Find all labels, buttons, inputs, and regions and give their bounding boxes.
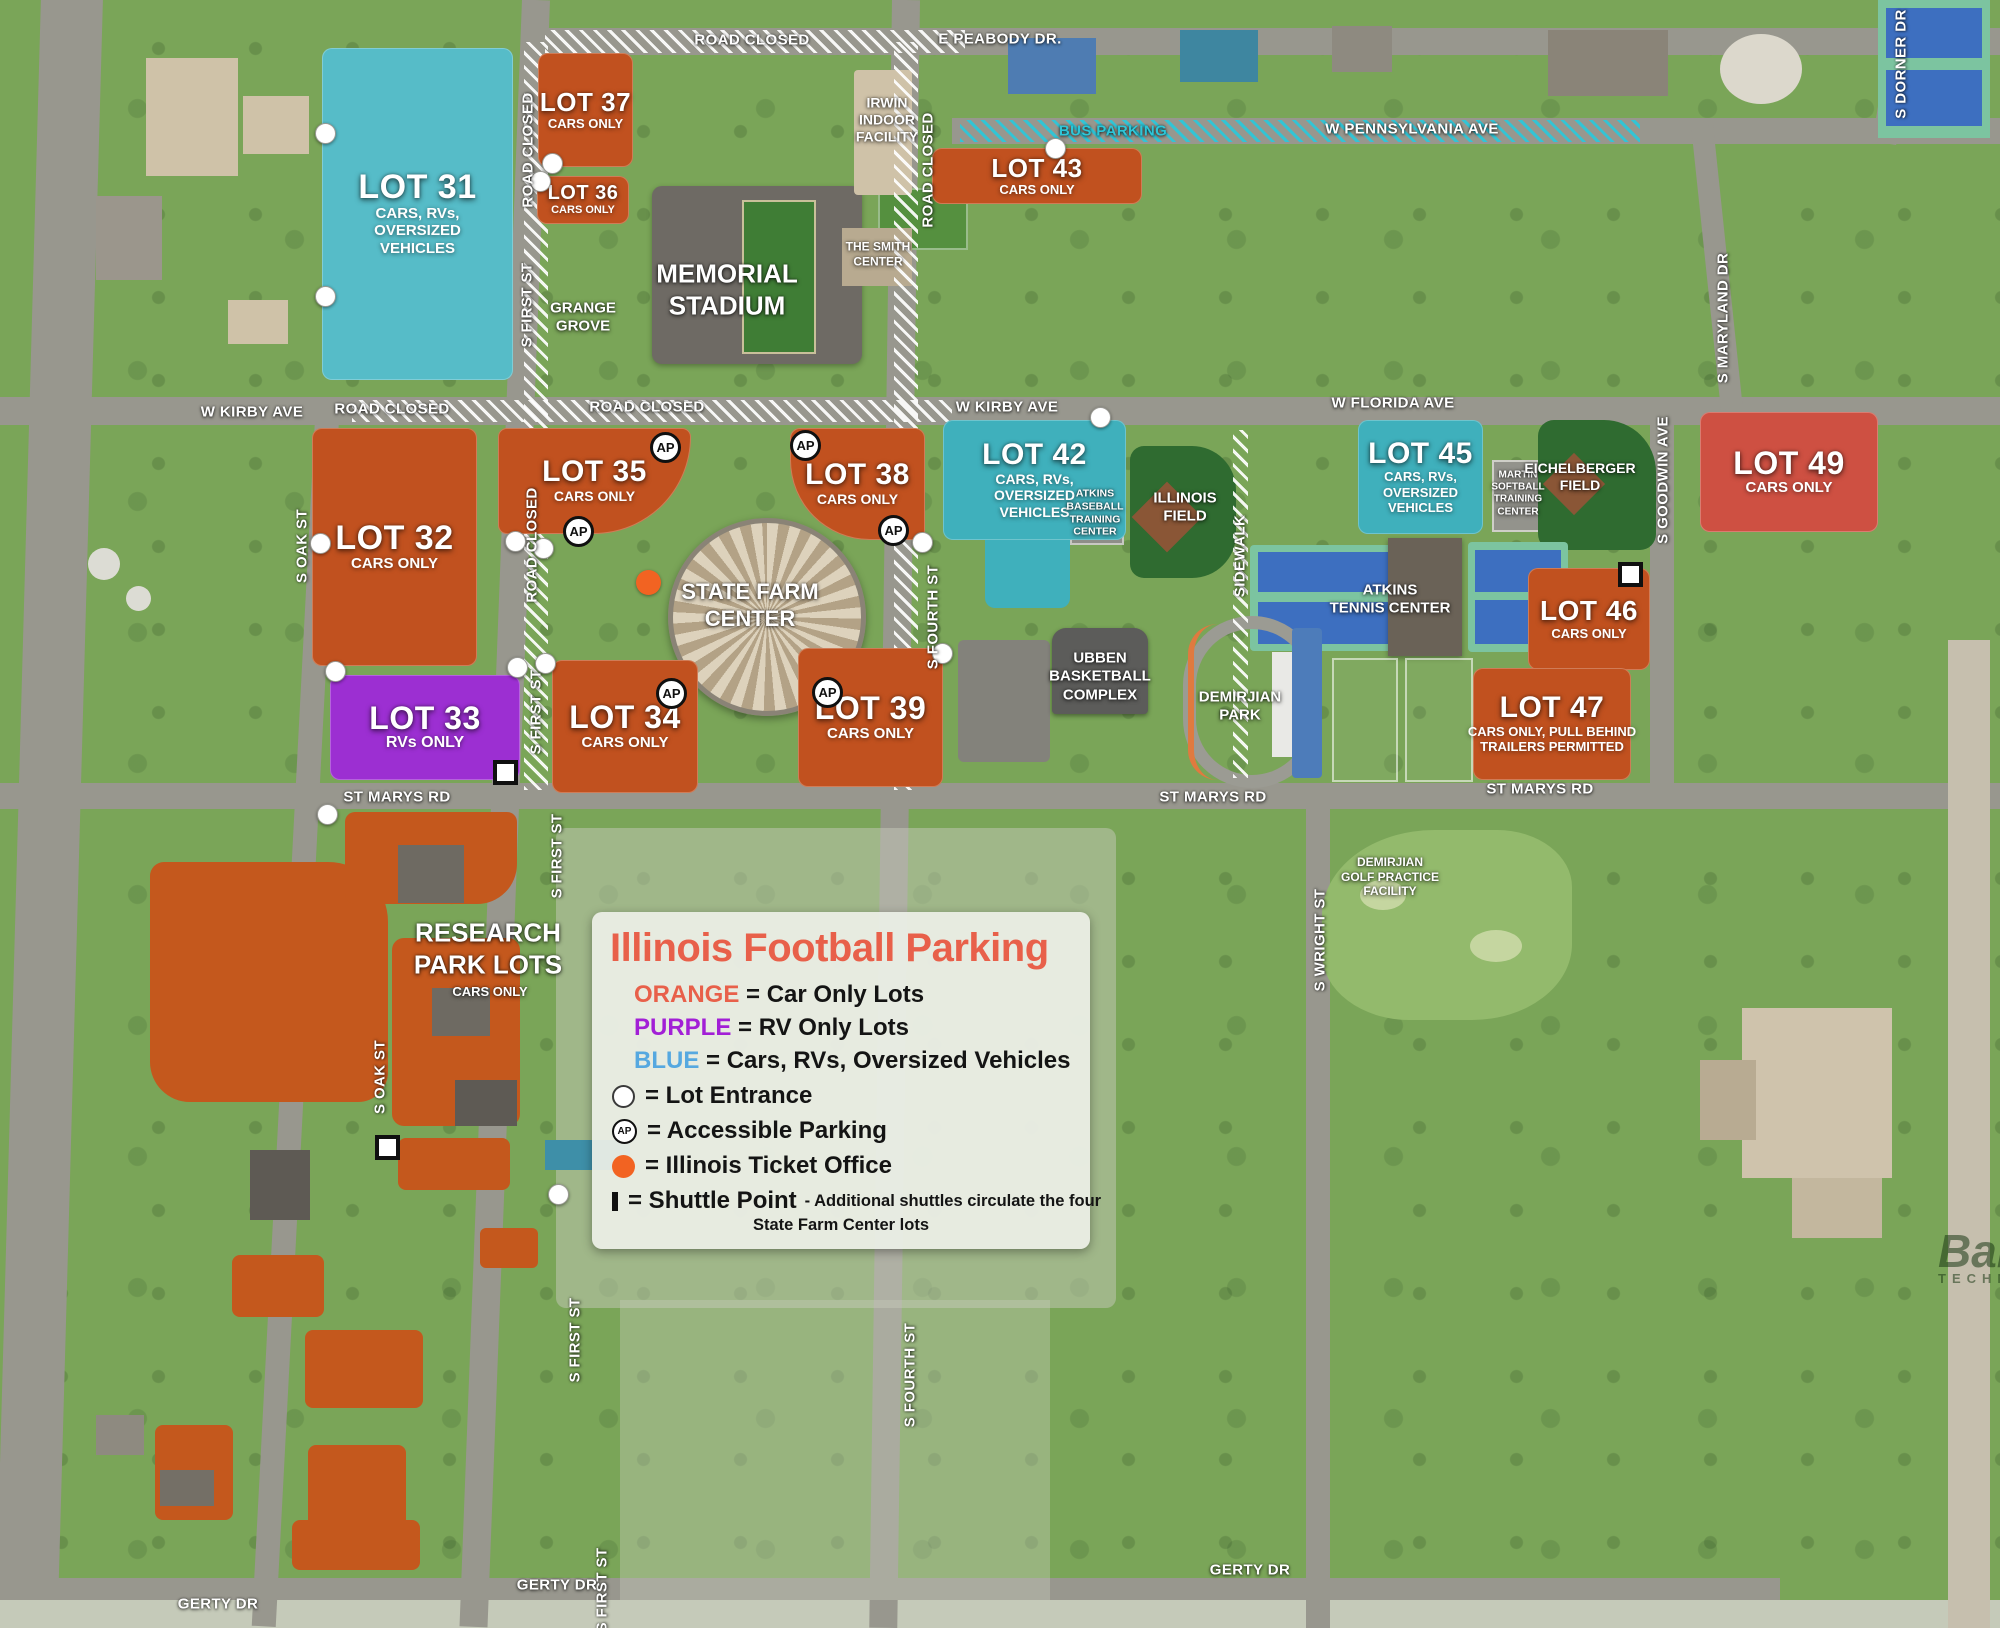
lot-36-sub-0: CARS ONLY [551, 204, 615, 217]
research-lot-5 [232, 1255, 324, 1317]
legend-entry-purple: PURPLE = RV Only Lots [634, 1014, 1074, 1042]
legend-swatch-word: ORANGE [634, 981, 739, 1008]
shuttle-note: - Additional shuttles circulate the four [805, 1192, 1101, 1211]
legend-entry-lot-entrance: = Lot Entrance [612, 1082, 1074, 1110]
building-northwest-4 [228, 300, 288, 344]
place-label-research: RESEARCHPARK LOTS [414, 917, 562, 980]
lot-entrance-marker [315, 123, 336, 144]
lot-37: LOT 37CARS ONLY [538, 53, 633, 167]
lot-entrance-icon [612, 1085, 635, 1108]
lot-35-sub-0: CARS ONLY [554, 488, 635, 505]
accessible-parking-icon: AP [612, 1119, 637, 1144]
street-label-s-wright-st: S WRIGHT ST [1312, 889, 1329, 992]
street-label-w-kirby-ave: W KIRBY AVE [201, 404, 303, 421]
street-label-s-fourth-st: S FOURTH ST [902, 1323, 919, 1427]
accessible-parking-marker: AP [878, 515, 909, 546]
lot-45-sub-1: OVERSIZED [1383, 485, 1458, 500]
street-label-s-dorner-dr: S DORNER DR [1893, 9, 1910, 118]
place-label-demirjian: DEMIRJIANGOLF PRACTICEFACILITY [1341, 855, 1439, 899]
accessible-parking-marker: AP [563, 516, 594, 547]
lot-38-sub-0: CARS ONLY [817, 491, 898, 508]
street-label-road-closed: ROAD CLOSED [524, 487, 541, 602]
accessible-parking-marker: AP [812, 677, 843, 708]
place-label-atkins: ATKINSBASEBALLTRAININGCENTER [1066, 487, 1123, 538]
place-label-illinois: ILLINOISFIELD [1153, 490, 1216, 527]
lot-33-sub-0: RVs ONLY [386, 734, 464, 753]
lot-entrance-marker [310, 533, 331, 554]
lot-39-sub-0: CARS ONLY [827, 725, 914, 743]
lot-31-sub-2: VEHICLES [380, 240, 455, 258]
lot-47-name: LOT 47 [1500, 693, 1605, 724]
research-building-3 [455, 1080, 517, 1126]
hospital-building-south [1792, 1178, 1882, 1238]
street-label-gerty-dr: GERTY DR [178, 1596, 258, 1613]
legend-swatch-word: BLUE [634, 1047, 699, 1074]
street-label-s-first-st: S FIRST ST [549, 814, 566, 899]
legend-color-entries: ORANGE = Car Only LotsPURPLE = RV Only L… [608, 981, 1074, 1075]
lot-32: LOT 32CARS ONLY [312, 428, 477, 666]
paved-area-south [620, 1300, 1050, 1600]
lot-33: LOT 33RVs ONLY [330, 675, 520, 780]
place-label-eichelberger: EICHELBERGERFIELD [1524, 460, 1635, 494]
street-label-road-closed: ROAD CLOSED [920, 112, 937, 227]
place-label-cars-only: CARS ONLY [452, 984, 527, 1000]
building-northeast-hall [1548, 30, 1668, 96]
watermark-sub: TECHN [1938, 1272, 2000, 1285]
paved-strip-bottom [0, 1600, 2000, 1628]
ticket-office-icon [612, 1155, 635, 1178]
place-label-irwin: IRWININDOORFACILITY [856, 94, 918, 145]
lot-33-name: LOT 33 [369, 702, 480, 735]
research-lot-10 [480, 1228, 538, 1268]
shuttle-point-icon [612, 1192, 618, 1211]
street-label-road-closed: ROAD CLOSED [589, 399, 704, 416]
lot-entrance-marker [325, 661, 346, 682]
lot-46-sub-0: CARS ONLY [1551, 626, 1626, 641]
lot-47: LOT 47CARS ONLY, PULL BEHINDTRAILERS PER… [1473, 668, 1631, 780]
shuttle-note-line2: State Farm Center lots [608, 1216, 1074, 1235]
legend-entry-label: = Accessible Parking [647, 1117, 887, 1145]
place-label-demirjian: DEMIRJIANPARK [1199, 689, 1282, 726]
watermark-logo: Bal [1938, 1228, 2000, 1274]
lot-entrance-marker [912, 532, 933, 553]
lot-31: LOT 31CARS, RVs,OVERSIZEDVEHICLES [322, 48, 513, 380]
lot-49-sub-0: CARS ONLY [1746, 479, 1833, 497]
lot-45-sub-2: VEHICLES [1388, 500, 1453, 515]
legend-title: Illinois Football Parking [610, 926, 1074, 971]
shuttle-point-marker [375, 1135, 400, 1160]
street-label-s-fourth-st: S FOURTH ST [925, 565, 942, 669]
soccer-pitch-1 [1332, 658, 1398, 782]
street-label-st-marys-rd: ST MARYS RD [1159, 789, 1266, 806]
street-label-w-florida-ave: W FLORIDA AVE [1332, 395, 1455, 412]
legend-entry-orange: ORANGE = Car Only Lots [634, 981, 1074, 1009]
campus-parking-map: LOT 31CARS, RVs,OVERSIZEDVEHICLESLOT 37C… [0, 0, 2000, 1628]
place-label-grange: GRANGEGROVE [550, 300, 616, 337]
street-label-s-first-st: S FIRST ST [528, 670, 545, 755]
lot-entrance-marker [315, 286, 336, 307]
building-north-gray [1332, 26, 1392, 72]
street-label-w-pennsylvania-ave: W PENNSYLVANIA AVE [1325, 121, 1499, 138]
legend-entry-label: = Illinois Ticket Office [645, 1152, 892, 1180]
building-southwest-2 [160, 1470, 214, 1506]
lot-45-sub-0: CARS, RVs, [1384, 469, 1457, 484]
building-southwest-3 [250, 1150, 310, 1220]
road-west-edge [0, 0, 103, 1628]
place-label-atkins: ATKINSTENNIS CENTER [1330, 582, 1451, 619]
accessible-parking-marker: AP [790, 430, 821, 461]
street-label-road-closed: ROAD CLOSED [520, 92, 537, 207]
lot-34-sub-0: CARS ONLY [582, 734, 669, 752]
street-label-sidewalk: SIDEWALK [1232, 515, 1249, 597]
building-northwest-1 [146, 58, 238, 176]
lot-43: LOT 43CARS ONLY [932, 148, 1142, 204]
lot-45-name: LOT 45 [1368, 439, 1473, 470]
lot-entrance-marker [507, 657, 528, 678]
lot-39: LOT 39CARS ONLY [798, 648, 943, 787]
sidewalk-hatch [1233, 430, 1248, 778]
lot-43-name: LOT 43 [991, 155, 1082, 182]
accessible-parking-marker: AP [650, 432, 681, 463]
legend-entry-ticket-office: = Illinois Ticket Office [612, 1152, 1074, 1180]
lot-37-sub-0: CARS ONLY [548, 116, 623, 131]
lot-35-name: LOT 35 [542, 457, 647, 488]
lot-47-sub-0: CARS ONLY, PULL BEHIND [1468, 724, 1636, 739]
lot-49: LOT 49CARS ONLY [1700, 412, 1878, 532]
building-southwest-1 [96, 1415, 144, 1455]
road-east-edge [1948, 640, 1990, 1628]
lot-43-sub-0: CARS ONLY [999, 182, 1074, 197]
lot-42-extension [985, 538, 1070, 608]
storage-tank-2 [126, 586, 151, 611]
legend-panel: Illinois Football Parking ORANGE = Car O… [592, 912, 1090, 1249]
street-label-bus-parking: BUS PARKING [1059, 123, 1167, 140]
place-label-state-farm: STATE FARMCENTER [681, 579, 818, 633]
lot-entrance-marker [542, 153, 563, 174]
lot-42-sub-1: OVERSIZED [994, 487, 1075, 504]
accessible-parking-marker: AP [656, 678, 687, 709]
legend-entry-blue: BLUE = Cars, RVs, Oversized Vehicles [634, 1047, 1074, 1075]
building-north-teal [1180, 30, 1258, 82]
street-label-gerty-dr: GERTY DR [517, 1577, 597, 1594]
street-label-w-kirby-ave: W KIRBY AVE [956, 399, 1058, 416]
street-label-s-maryland-dr: S MARYLAND DR [1715, 253, 1732, 383]
shuttle-point-marker [1618, 562, 1643, 587]
hospital-building-wing [1700, 1060, 1756, 1140]
shuttle-point-marker [493, 760, 518, 785]
street-label-st-marys-rd: ST MARYS RD [1486, 781, 1593, 798]
legend-entry-shuttle-point: = Shuttle Point- Additional shuttles cir… [612, 1187, 1074, 1215]
lot-entrance-marker [317, 804, 338, 825]
hospital-building-main [1742, 1008, 1892, 1178]
street-label-s-first-st: S FIRST ST [567, 1298, 584, 1383]
lot-42-name: LOT 42 [982, 440, 1087, 471]
lot-entrance-marker [1090, 407, 1111, 428]
research-lot-9 [292, 1520, 420, 1570]
ticket-office-marker [636, 570, 661, 595]
lot-entrance-marker [1045, 138, 1066, 159]
demirjian-bleachers [1292, 628, 1322, 778]
lot-45: LOT 45CARS, RVs,OVERSIZEDVEHICLES [1358, 420, 1483, 534]
lot-47-sub-1: TRAILERS PERMITTED [1480, 739, 1624, 754]
place-label-memorial: MEMORIALSTADIUM [656, 258, 798, 321]
legend-entry-label: = Shuttle Point [628, 1187, 797, 1215]
lot-37-name: LOT 37 [540, 89, 631, 116]
street-label-s-first-st: S FIRST ST [519, 263, 536, 348]
lot-entrance-marker [548, 1184, 569, 1205]
soccer-pitch-2 [1405, 658, 1473, 782]
lot-38-name: LOT 38 [805, 460, 910, 491]
place-label-the-smith: THE SMITHCENTER [846, 239, 911, 268]
building-northeast-dome [1720, 34, 1802, 104]
legend-swatch-word: PURPLE [634, 1014, 731, 1041]
street-label-s-goodwin-ave: S GOODWIN AVE [1655, 416, 1672, 544]
research-lot-6 [305, 1330, 423, 1408]
place-label-ubben: UBBENBASKETBALLCOMPLEX [1049, 650, 1151, 705]
lot-42-sub-2: VEHICLES [999, 504, 1069, 521]
lot-32-sub-0: CARS ONLY [351, 555, 438, 573]
legend-entry-label: = Lot Entrance [645, 1082, 812, 1110]
lot-46-name: LOT 46 [1540, 597, 1638, 626]
research-lot-8 [308, 1445, 406, 1530]
storage-tank-1 [88, 548, 120, 580]
street-label-s-oak-st: S OAK ST [294, 509, 311, 583]
street-label-road-closed: ROAD CLOSED [334, 401, 449, 418]
street-label-s-oak-st: S OAK ST [372, 1040, 389, 1114]
golf-green-2 [1470, 930, 1522, 962]
legend-symbol-entries: = Lot EntranceAP= Accessible Parking= Il… [608, 1082, 1074, 1235]
research-building-1 [398, 845, 464, 903]
lot-31-sub-1: OVERSIZED [374, 222, 461, 240]
street-label-gerty-dr: GERTY DR [1210, 1562, 1290, 1579]
research-lot-4 [398, 1138, 510, 1190]
lot-32-name: LOT 32 [335, 521, 453, 556]
lot-31-sub-0: CARS, RVs, [376, 205, 460, 223]
legend-entry-accessible-parking: AP= Accessible Parking [612, 1117, 1074, 1145]
lot-31-name: LOT 31 [358, 170, 476, 205]
street-label-road-closed: ROAD CLOSED [694, 32, 809, 49]
lot-49-name: LOT 49 [1733, 447, 1844, 480]
street-label-st-marys-rd: ST MARYS RD [343, 789, 450, 806]
ubben-parking-area [958, 640, 1050, 762]
building-northwest-2 [243, 96, 309, 154]
street-label-e-peabody-dr-: E PEABODY DR. [938, 31, 1061, 48]
building-northwest-3 [96, 196, 162, 280]
lot-36-name: LOT 36 [548, 183, 619, 203]
lot-42-sub-0: CARS, RVs, [995, 471, 1073, 488]
